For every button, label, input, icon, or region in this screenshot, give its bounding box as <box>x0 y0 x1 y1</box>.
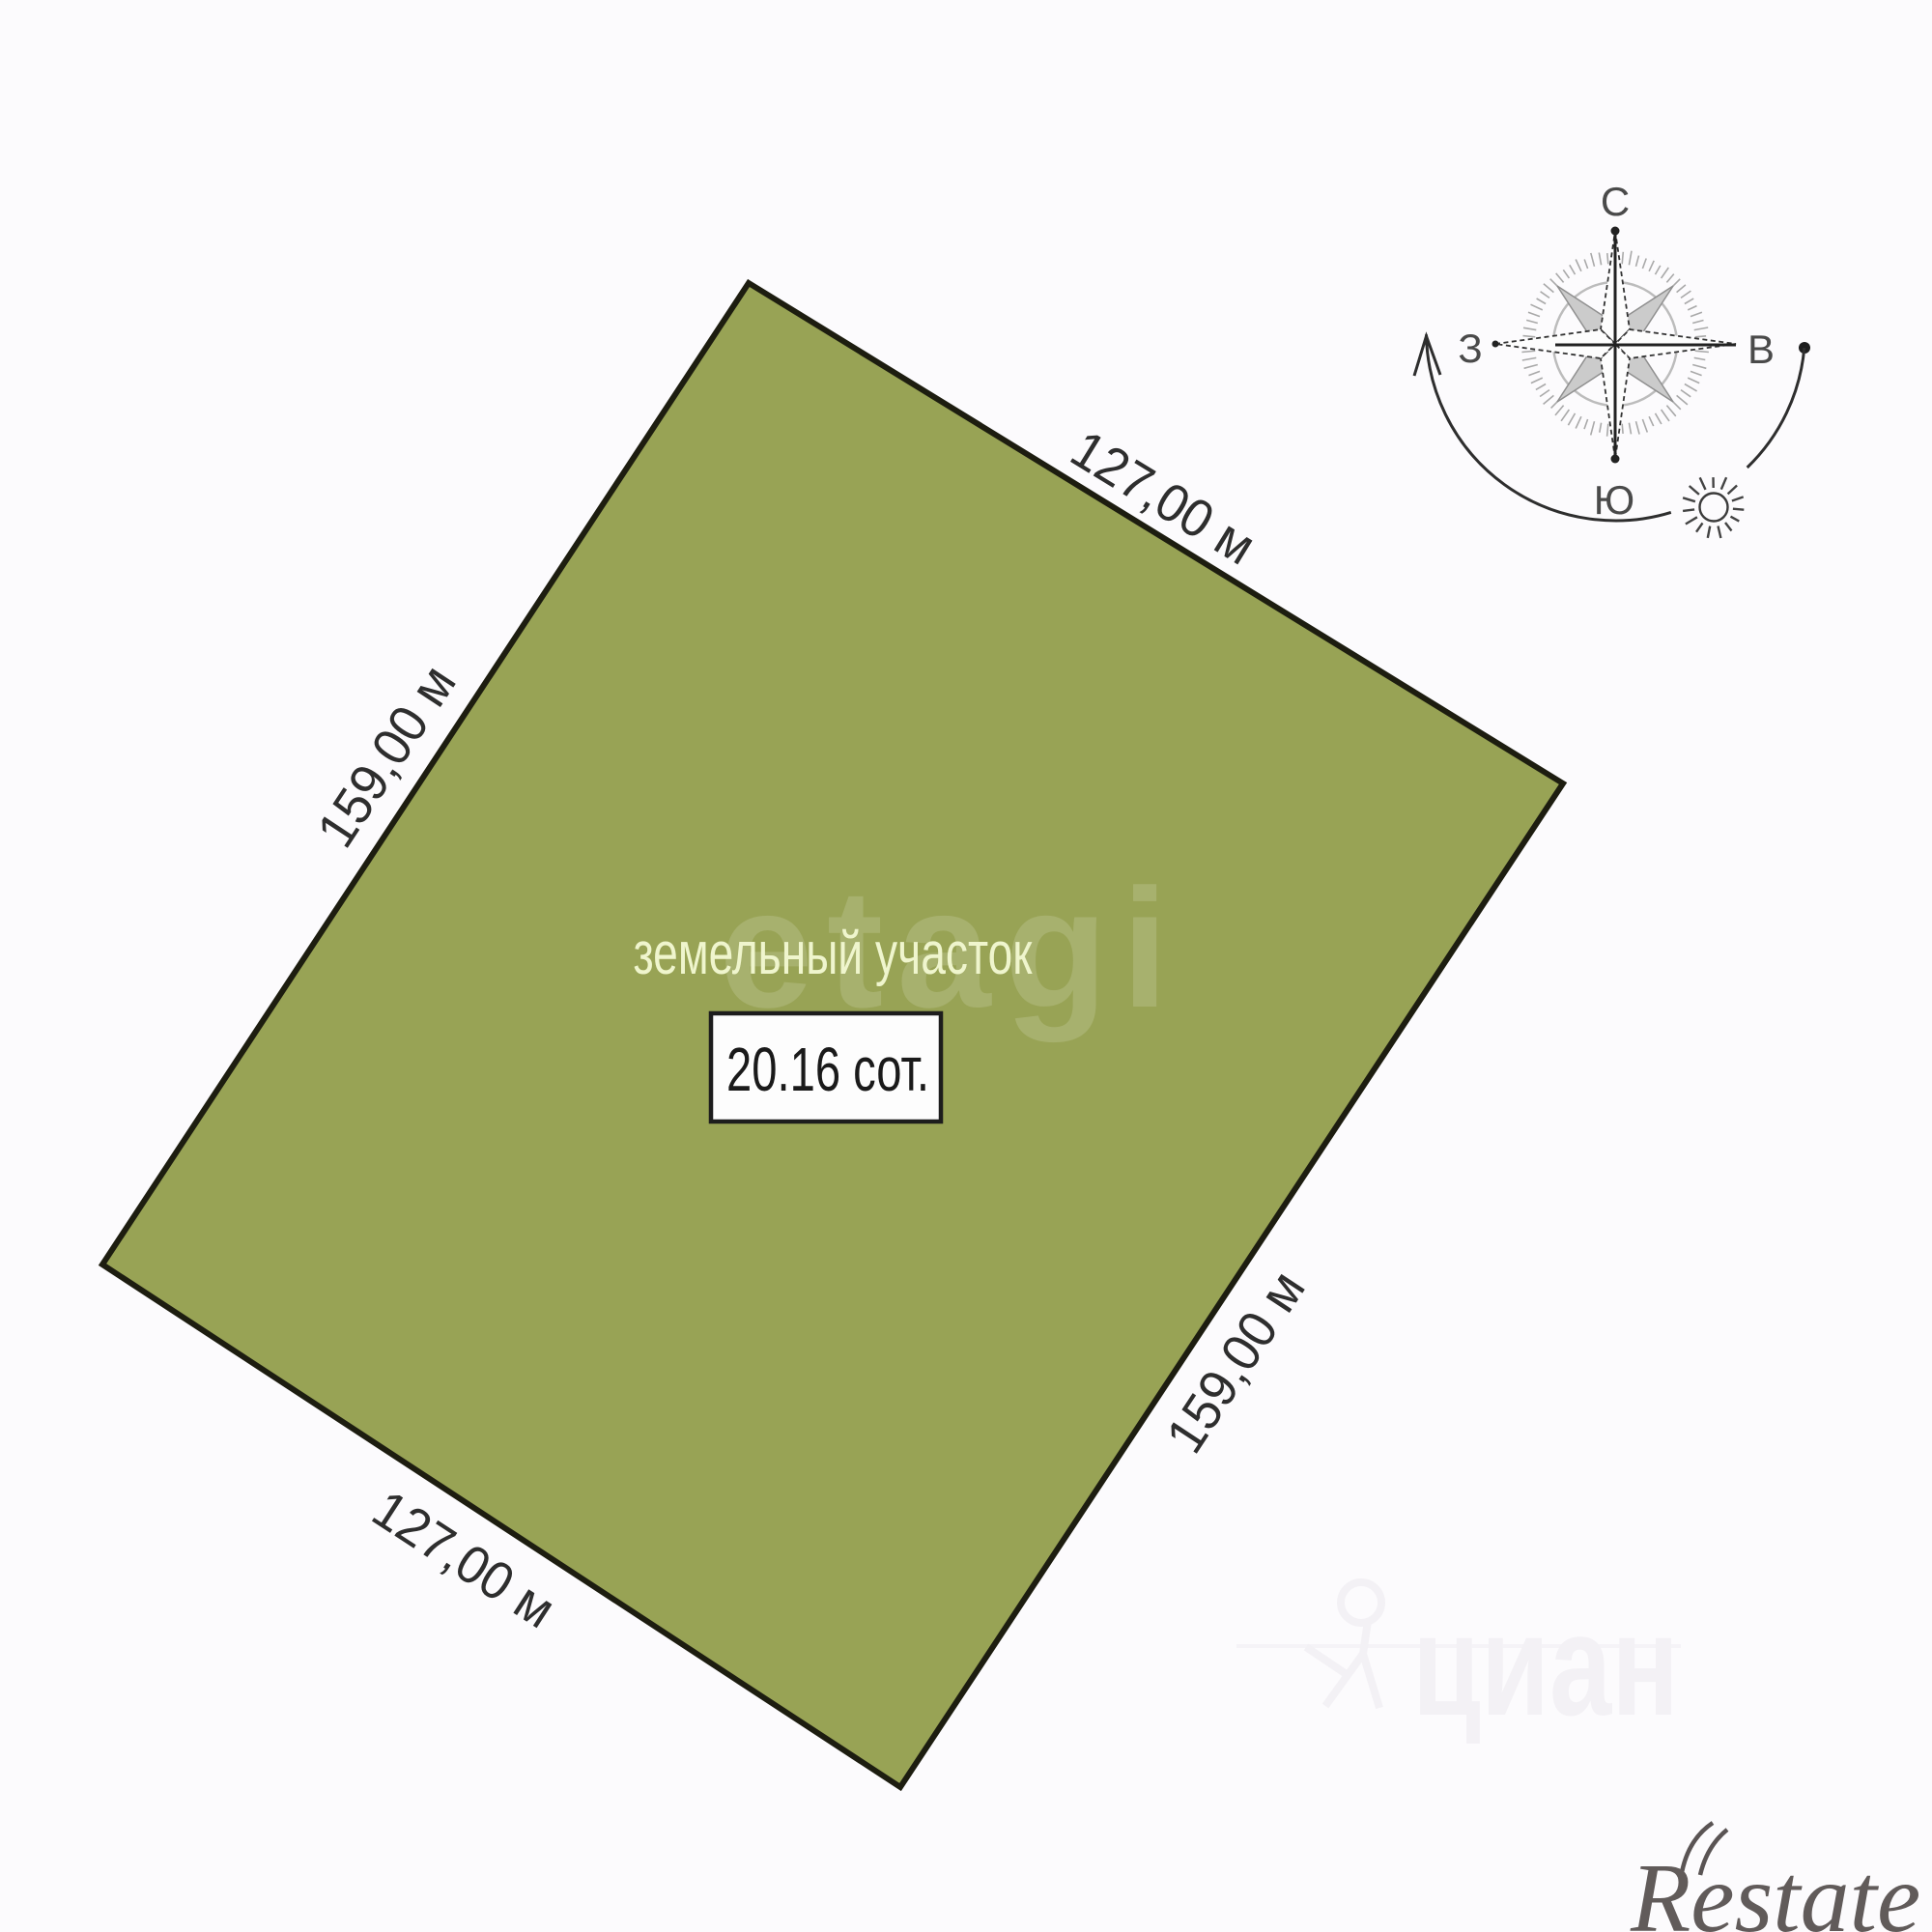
svg-text:С: С <box>1601 179 1630 224</box>
svg-text:земельный участок: земельный участок <box>634 921 1034 987</box>
svg-text:циан: циан <box>1412 1583 1679 1746</box>
svg-text:Ю: Ю <box>1594 477 1634 523</box>
svg-text:З: З <box>1458 326 1482 371</box>
svg-text:20.16 сот.: 20.16 сот. <box>726 1035 929 1104</box>
svg-text:В: В <box>1747 327 1775 372</box>
svg-text:Restate: Restate <box>1630 1844 1920 1932</box>
